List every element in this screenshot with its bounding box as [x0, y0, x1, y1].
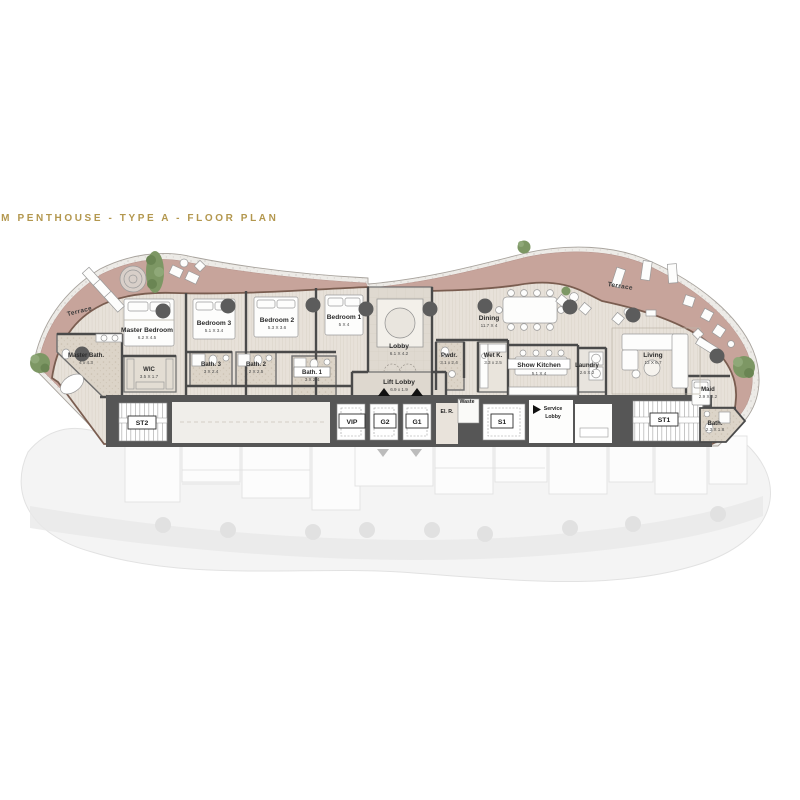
page-title: 4-BEDROOM PENTHOUSE - TYPE A - FLOOR PLA…: [0, 213, 278, 224]
tree-icon: [562, 287, 571, 296]
bedroom2-dim: 5.3 X 3.6: [268, 325, 287, 330]
living-dim: 13 X 6.7: [644, 360, 662, 365]
service-lobby-label-1: Service: [544, 406, 563, 412]
bath1-label: Bath. 1: [302, 370, 323, 376]
show-kitchen-label: Show Kitchen: [517, 362, 561, 369]
show-kitchen-dim: 5.1 X 4: [532, 371, 547, 376]
tree-icon: [733, 356, 755, 378]
tree-icon: [30, 353, 50, 373]
g1-lift-label: G1: [412, 419, 421, 426]
master-bath-dim: 4 x 4.3: [79, 360, 93, 365]
master-bedroom-label: Master Bedroom: [121, 327, 173, 334]
wetk-dim: 3.3 x 2.5: [484, 360, 502, 365]
bedroom1-label: Bedroom 1: [327, 314, 362, 321]
ghost-lower-floor: [21, 428, 770, 581]
electrical-room-label: El. R.: [441, 409, 455, 415]
bath2-dim: 2 X 2.5: [249, 369, 264, 374]
waste-label: Waste: [459, 399, 474, 405]
maid-dim: 2.9 X 2.2: [699, 394, 718, 399]
tree-icon: [518, 241, 531, 254]
pwdr-dim: 3.1 x 2.4: [440, 360, 458, 365]
bedroom3-dim: 5.1 X 3.4: [205, 328, 224, 333]
bath2-label: Bath. 2: [246, 362, 267, 368]
wic-dim: 3.5 X 1.7: [140, 374, 159, 379]
bedroom1-dim: 5 X 4: [339, 322, 350, 327]
bath3-dim: 3 X 2.4: [204, 369, 219, 374]
laundry-label: Laundry: [575, 363, 599, 369]
maid-label: Maid: [701, 387, 715, 393]
wetk-label: Wet K.: [484, 353, 503, 359]
living-label: Living: [643, 352, 662, 359]
lobby-feature: [377, 299, 423, 347]
dining-dim: 11.7 X 4: [481, 323, 498, 328]
dining-label: Dining: [479, 315, 500, 322]
lift-lobby-label: Lift Lobby: [383, 379, 415, 386]
vip-lift-label: VIP: [347, 419, 358, 426]
back-corridor: [172, 402, 330, 443]
floor-plan-canvas: 4-BEDROOM PENTHOUSE - TYPE A - FLOOR PLA…: [0, 0, 800, 800]
wic-label: WIC: [143, 367, 155, 373]
st1-label: ST1: [658, 417, 671, 424]
lobby-label: Lobby: [389, 343, 409, 350]
g2-lift-label: G2: [380, 419, 389, 426]
bedroom3-label: Bedroom 3: [197, 320, 232, 327]
bedroom2-label: Bedroom 2: [260, 317, 295, 324]
tree-icon: [146, 251, 164, 293]
s1-lift-label: S1: [498, 419, 507, 426]
bath3-label: Bath. 3: [201, 362, 222, 368]
lobby-dim: 6.1 X 4.2: [390, 351, 409, 356]
bath1-dim: 3 X 2.4: [305, 377, 320, 382]
service-lobby-label-2: Lobby: [545, 414, 561, 420]
lift-lobby-dim: 6.9 x 1.9: [390, 387, 408, 392]
floor-plan-page: 4-BEDROOM PENTHOUSE - TYPE A - FLOOR PLA…: [0, 0, 800, 800]
pwdr-label: Pwdr.: [441, 353, 457, 359]
bath-right-dim: 2.3 X 1.8: [706, 427, 725, 432]
laundry-dim: 2.6 X 2: [580, 370, 595, 375]
st2-label: ST2: [136, 420, 149, 427]
master-bedroom-dim: 6.2 X 4.5: [138, 335, 157, 340]
master-bath-label: Master Bath.: [68, 353, 104, 359]
